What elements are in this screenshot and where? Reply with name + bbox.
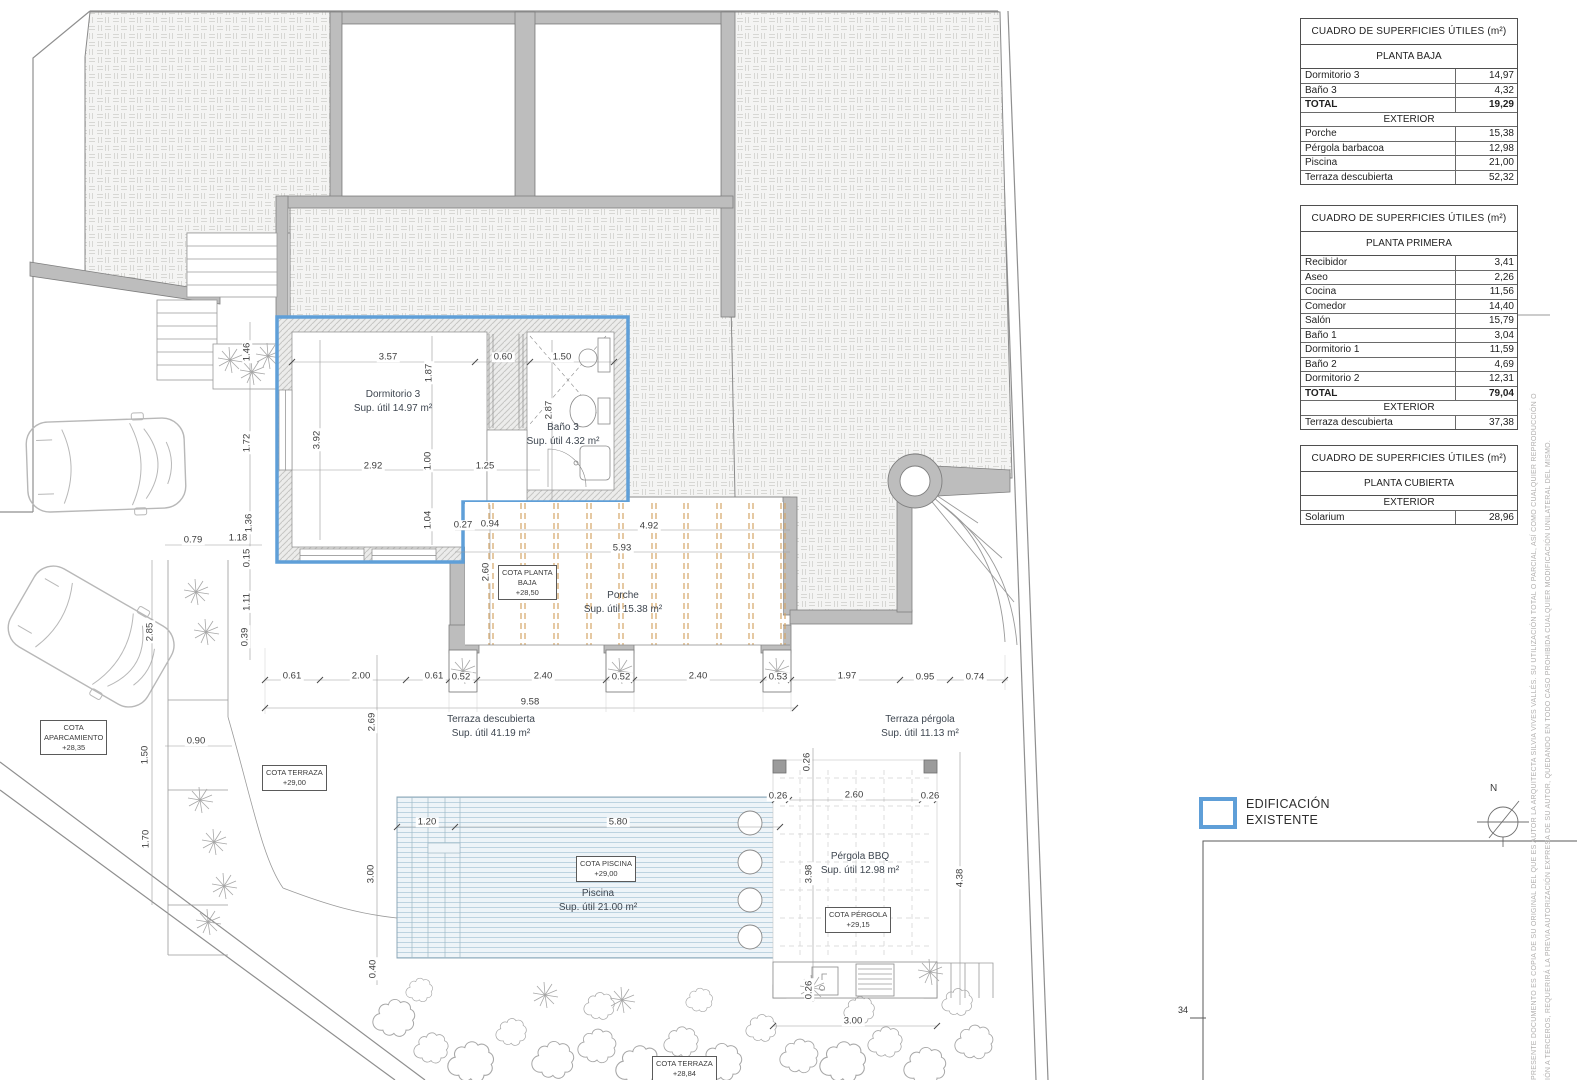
- cota-box: COTA PÉRGOLA+29,15: [825, 907, 891, 933]
- dim-label: 1.72: [242, 432, 252, 455]
- dim-label: 1.00: [423, 450, 433, 473]
- dim-label: 0.60: [492, 352, 515, 362]
- dim-label: 1.46: [242, 341, 252, 364]
- dim-label: 1.18: [227, 533, 250, 543]
- dim-label: 2.60: [481, 561, 491, 584]
- table-row: Baño 3 4,32: [1301, 84, 1517, 99]
- dim-label: 3.98: [804, 863, 814, 886]
- table-title: CUADRO DE SUPERFICIES ÚTILES (m²): [1301, 19, 1517, 45]
- dim-label: 0.26: [919, 791, 942, 801]
- north-label: N: [1490, 783, 1497, 794]
- sheet-number: 34: [1178, 1005, 1188, 1015]
- table-title: CUADRO DE SUPERFICIES ÚTILES (m²): [1301, 206, 1517, 232]
- dim-label: 2.69: [367, 711, 377, 734]
- dim-label: 3.00: [366, 863, 376, 886]
- dim-label: 3.92: [312, 429, 322, 452]
- legend-line1: EDIFICACIÓN: [1246, 797, 1330, 813]
- cota-box: COTAAPARCAMIENTO+28,35: [40, 720, 107, 755]
- table-row: Recibidor 3,41: [1301, 256, 1517, 271]
- dim-label: 0.27: [452, 520, 475, 530]
- cota-box: COTA PLANTABAJA+28,50: [498, 565, 557, 600]
- dim-label: 0.94: [479, 519, 502, 529]
- legend-existing-building: EDIFICACIÓN EXISTENTE: [1199, 797, 1330, 829]
- table-row: Dormitorio 2 12,31: [1301, 372, 1517, 387]
- dim-label: 1.50: [551, 352, 574, 362]
- dim-label: 0.52: [610, 672, 633, 682]
- parked-cars: [0, 411, 187, 720]
- dim-label: 5.80: [607, 817, 630, 827]
- garden-edges: [168, 560, 397, 955]
- table-row: Cocina 11,56: [1301, 285, 1517, 300]
- dim-label: 2.85: [145, 621, 155, 644]
- table-row: EXTERIOR: [1301, 113, 1517, 128]
- car-top-view: [0, 553, 185, 720]
- north-compass: [1477, 801, 1529, 847]
- floor-plan-sheet: 1.46 1.72 1.36 1.18 0.79 0.15 1.11 0.39 …: [0, 0, 1577, 1080]
- legend-swatch: [1199, 797, 1237, 829]
- cota-box: COTA TERRAZA+28,84: [652, 1056, 717, 1080]
- dim-label: 1.87: [424, 362, 434, 385]
- dim-label: 2.60: [843, 790, 866, 800]
- table-row: Baño 1 3,04: [1301, 329, 1517, 344]
- room-label: Piscina Sup. útil 21.00 m²: [559, 887, 637, 914]
- dim-label: 1.50: [140, 744, 150, 767]
- dim-label: 4.92: [638, 521, 661, 531]
- cota-box: COTA PISCINA+29,00: [576, 856, 636, 882]
- dim-label: 0.26: [804, 979, 814, 1002]
- table-row: Piscina 21,00: [1301, 156, 1517, 171]
- table-planta-cubierta: CUADRO DE SUPERFICIES ÚTILES (m²) PLANTA…: [1300, 445, 1518, 525]
- table-title: CUADRO DE SUPERFICIES ÚTILES (m²): [1301, 446, 1517, 472]
- table-row: TOTAL 79,04: [1301, 387, 1517, 402]
- room-label: Terraza descubierta Sup. útil 41.19 m²: [447, 713, 535, 740]
- copyright-disclaimer-line1: PRESENTE DOCUMENTO ES COPIA DE SU ORIGIN…: [1531, 0, 1538, 1080]
- table-row: Dormitorio 1 11,59: [1301, 343, 1517, 358]
- table-row: EXTERIOR: [1301, 401, 1517, 416]
- legend-line2: EXISTENTE: [1246, 813, 1330, 829]
- dim-label: 2.40: [687, 671, 710, 681]
- table-row: Comedor 14,40: [1301, 300, 1517, 315]
- dim-label: 9.58: [519, 697, 542, 707]
- dim-label: 2.40: [532, 671, 555, 681]
- dim-label: 0.79: [182, 535, 205, 545]
- table-row: Terraza descubierta 37,38: [1301, 416, 1517, 430]
- dim-label: 1.97: [836, 671, 859, 681]
- dim-label: 0.95: [914, 672, 937, 682]
- dim-label: 1.11: [242, 591, 252, 613]
- dim-label: 0.74: [964, 672, 987, 682]
- dim-label: 0.61: [281, 671, 304, 681]
- table-planta-baja: CUADRO DE SUPERFICIES ÚTILES (m²) PLANTA…: [1300, 18, 1518, 185]
- table-row: Salón 15,79: [1301, 314, 1517, 329]
- dim-label: 2.92: [362, 461, 385, 471]
- copyright-disclaimer-line2: IÓN A TERCEROS, REQUERIRÁ LA PREVIA AUTO…: [1545, 0, 1552, 1080]
- car-top-view: [25, 411, 186, 518]
- dim-label: 0.53: [767, 672, 790, 682]
- table-subtitle: PLANTA PRIMERA: [1301, 232, 1517, 256]
- table-row: Baño 2 4,69: [1301, 358, 1517, 373]
- dim-label: 0.15: [242, 547, 252, 570]
- dim-label: 1.36: [244, 512, 254, 535]
- dim-label: 0.26: [802, 751, 812, 774]
- room-label: Dormitorio 3 Sup. útil 14.97 m²: [354, 388, 432, 415]
- table-row: EXTERIOR: [1301, 496, 1517, 511]
- dim-label: 4.38: [955, 867, 965, 890]
- room-label: Terraza pérgola Sup. útil 11.13 m²: [881, 713, 959, 740]
- table-row: Dormitorio 3 14,97: [1301, 69, 1517, 84]
- table-row: Solarium 28,96: [1301, 511, 1517, 525]
- dim-label: 0.39: [240, 626, 250, 649]
- dim-label: 0.40: [368, 958, 378, 981]
- dim-label: 0.52: [450, 672, 473, 682]
- dim-label: 1.20: [416, 817, 439, 827]
- cota-box: COTA TERRAZA+29,00: [262, 765, 327, 791]
- dim-label: 3.00: [842, 1016, 865, 1026]
- dim-label: 0.26: [767, 791, 790, 801]
- dim-label: 0.90: [185, 736, 208, 746]
- dim-label: 3.57: [377, 352, 400, 362]
- dim-label: 5.93: [611, 543, 634, 553]
- dim-label: 1.04: [423, 509, 433, 532]
- table-row: Aseo 2,26: [1301, 271, 1517, 286]
- table-planta-primera: CUADRO DE SUPERFICIES ÚTILES (m²) PLANTA…: [1300, 205, 1518, 430]
- table-subtitle: PLANTA CUBIERTA: [1301, 472, 1517, 496]
- dim-label: 2.87: [544, 399, 554, 422]
- room-label: Porche Sup. útil 15.38 m²: [584, 589, 662, 616]
- room-label: Baño 3 Sup. útil 4.32 m²: [527, 421, 600, 448]
- table-row: Terraza descubierta 52,32: [1301, 171, 1517, 185]
- table-subtitle: PLANTA BAJA: [1301, 45, 1517, 69]
- room-label: Pérgola BBQ Sup. útil 12.98 m²: [821, 850, 899, 877]
- dim-label: 0.61: [423, 671, 446, 681]
- table-row: Porche 15,38: [1301, 127, 1517, 142]
- dim-label: 1.70: [141, 828, 151, 851]
- dim-label: 2.00: [350, 671, 373, 681]
- dim-label: 1.25: [474, 461, 497, 471]
- table-row: Pérgola barbacoa 12,98: [1301, 142, 1517, 157]
- table-row: TOTAL 19,29: [1301, 98, 1517, 113]
